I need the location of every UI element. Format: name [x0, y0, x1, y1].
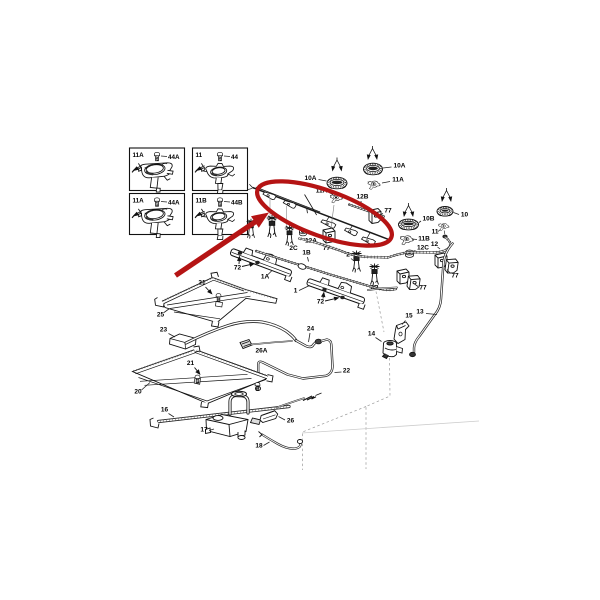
- svg-text:10: 10: [461, 212, 469, 219]
- svg-text:11: 11: [196, 152, 203, 159]
- svg-text:44A: 44A: [168, 154, 180, 161]
- svg-text:77: 77: [419, 285, 427, 292]
- svg-text:44: 44: [231, 154, 239, 161]
- svg-text:44A: 44A: [168, 200, 180, 207]
- svg-text:20: 20: [134, 389, 142, 396]
- svg-text:12C: 12C: [417, 245, 429, 252]
- svg-text:13: 13: [416, 309, 424, 316]
- svg-text:10A: 10A: [394, 163, 406, 170]
- svg-text:1: 1: [294, 288, 298, 295]
- svg-text:12B: 12B: [357, 194, 369, 201]
- svg-text:16: 16: [161, 407, 169, 414]
- svg-text:11: 11: [432, 229, 439, 236]
- svg-text:25: 25: [157, 312, 165, 319]
- svg-text:26: 26: [287, 418, 295, 425]
- svg-text:17: 17: [200, 427, 208, 434]
- svg-text:24: 24: [307, 326, 315, 333]
- svg-text:77: 77: [384, 208, 392, 215]
- svg-text:77: 77: [451, 273, 459, 280]
- svg-text:10B: 10B: [423, 216, 435, 223]
- svg-text:23: 23: [160, 327, 168, 334]
- svg-text:15: 15: [405, 313, 413, 320]
- svg-text:2C: 2C: [289, 245, 298, 252]
- svg-text:11B: 11B: [418, 236, 430, 243]
- svg-text:72: 72: [317, 299, 325, 306]
- svg-text:18: 18: [255, 443, 263, 450]
- svg-text:22: 22: [343, 368, 351, 375]
- svg-text:72: 72: [234, 265, 242, 272]
- svg-text:12: 12: [431, 241, 439, 248]
- svg-text:21: 21: [187, 360, 195, 367]
- svg-text:10A: 10A: [305, 175, 317, 182]
- svg-text:44B: 44B: [231, 200, 243, 207]
- svg-text:11A: 11A: [133, 152, 145, 159]
- svg-text:11B: 11B: [196, 198, 208, 205]
- svg-text:26A: 26A: [256, 348, 268, 355]
- svg-text:11A: 11A: [133, 198, 145, 205]
- svg-text:14: 14: [368, 331, 376, 338]
- svg-text:1B: 1B: [302, 250, 311, 257]
- svg-text:11A: 11A: [392, 177, 404, 184]
